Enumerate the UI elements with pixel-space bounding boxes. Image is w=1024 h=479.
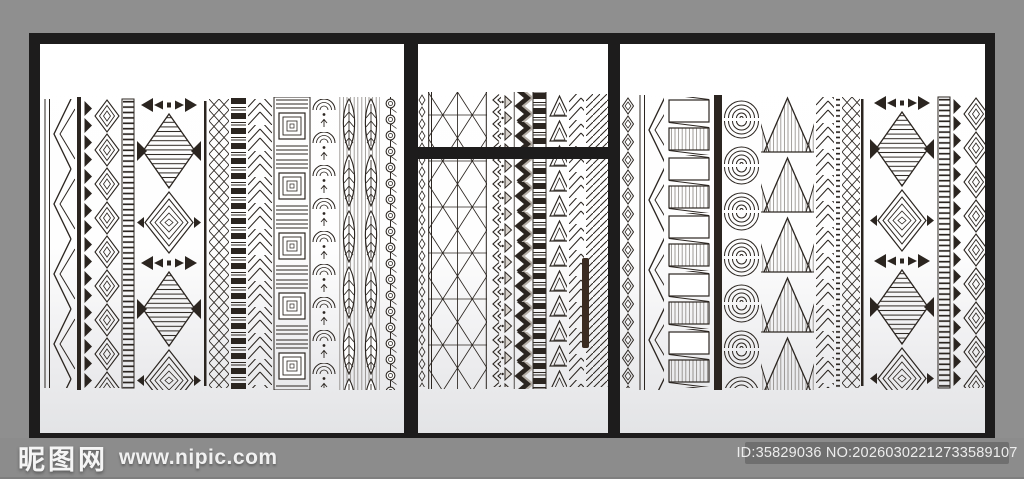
strip-diamond-chain [418,94,426,387]
pattern-artwork-middle [418,92,608,389]
strip-black-rung-ladder [231,97,246,390]
door-handle [582,258,589,348]
strip-thin-line [861,99,864,386]
strip-dotted-triangles [501,94,513,387]
strip-diagonal-hatch [586,94,608,387]
watermark-bar: 昵图网 www.nipic.com ID:35829036 NO:2026030… [0,438,1024,479]
strip-scallop-lace [312,99,336,388]
middle-panel-crossbar [404,147,620,159]
strip-fingerprint-arcs [724,97,759,388]
strip-solid-bar [714,95,722,390]
strip-herringbone [816,97,834,388]
strip-nested-chevrons [963,97,985,388]
strip-leaves [338,97,380,390]
strip-sawtooth [83,99,93,388]
nipic-url-text: www.nipic.com [119,446,278,470]
strip-bead-chain [382,97,399,390]
strip-nested-chevrons [94,99,120,388]
strip-sawtooth [952,97,961,388]
strip-rung-ladder [122,99,134,388]
pattern-artwork-left [40,97,404,390]
strip-rect-ladder [666,97,712,388]
pattern-artwork-right [620,95,985,390]
glass-panel-middle [418,44,608,433]
strip-diamond-totem [869,95,935,390]
strip-black-line [77,97,81,390]
strip-spiral-squares [274,97,310,390]
strip-zigzag-lattice [636,95,664,390]
strip-rung-ladder [835,97,840,388]
strip-chevron-arrows [489,94,501,387]
strip-black-rung-ladder [533,92,546,389]
strip-rung-ladder [938,97,950,388]
glass-panel-left [40,44,404,433]
strip-zigzag-lattice [41,99,75,388]
strip-diamond-chain [621,97,634,388]
strip-triangle-net [428,92,487,389]
strip-zigzag-ribbon [513,92,532,389]
watermark-brand: 昵图网 www.nipic.com [18,438,278,477]
strip-crosshatch [842,97,860,388]
strip-herringbone [248,99,272,388]
strip-hatched-mountains [761,95,814,390]
strip-thin-line [204,101,207,386]
nipic-logo-text: 昵图网 [18,438,108,477]
strip-diamond-totem [136,97,202,390]
stock-image-preview: 昵图网 www.nipic.com ID:35829036 NO:2026030… [0,0,1024,479]
strip-hollow-triangles [548,94,567,387]
strip-crosshatch [209,99,229,388]
image-id-badge: ID:35829036 NO:20260302212733589107 [745,442,1009,464]
glass-panel-right [620,44,985,433]
